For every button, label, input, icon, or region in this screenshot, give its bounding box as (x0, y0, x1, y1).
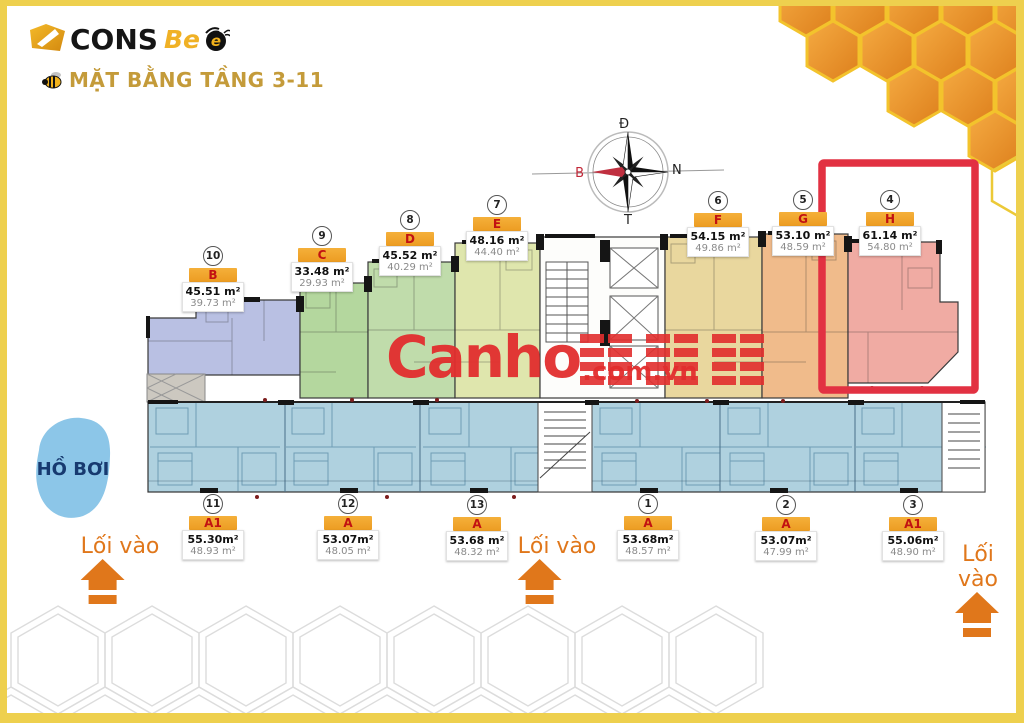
unit-number-badge: 4 (880, 190, 900, 210)
unit-area-gross: 53.10 m² (774, 229, 832, 242)
unit-area-net: 40.29 m² (381, 262, 439, 273)
stairwell (538, 402, 592, 492)
unit-number-badge: 7 (487, 195, 507, 215)
unit-label-7E: 7 E 48.16 m² 44.40 m² (466, 195, 528, 261)
unit-area-net: 39.73 m² (184, 298, 242, 309)
entrance-left: Lối vào (81, 534, 160, 605)
unit-label-8D: 8 D 45.52 m² 40.29 m² (379, 210, 441, 276)
unit-number-badge: 5 (793, 190, 813, 210)
unit-area-box: 61.14 m² 54.80 m² (859, 226, 921, 256)
entrance-arrow-icon (518, 559, 562, 605)
brand-logo: CONS Be e (28, 22, 230, 56)
brand-mark-icon (28, 22, 68, 56)
unit-area-box: 54.15 m² 49.86 m² (687, 227, 749, 257)
entrance-label: Lối vào (955, 542, 1001, 592)
hatched-service-box (147, 374, 205, 402)
unit-area-box: 45.51 m² 39.73 m² (182, 282, 244, 312)
bee-icon (42, 70, 64, 90)
unit-label-4H: 4 H 61.14 m² 54.80 m² (859, 190, 921, 256)
unit-letter-bar: B (189, 268, 237, 282)
compass-label-right: N (672, 163, 682, 178)
frame-border-right (1016, 0, 1024, 723)
entrance-label: Lối vào (518, 534, 597, 559)
unit-label-9C: 9 C 33.48 m² 29.93 m² (291, 226, 353, 292)
unit-area-box: 55.30m² 48.93 m² (182, 530, 244, 560)
unit-letter-bar: D (386, 232, 434, 246)
frame-border-top (0, 0, 1024, 6)
unit-area-net: 48.90 m² (884, 547, 942, 558)
compass-west-needle (592, 167, 626, 177)
unit-number-badge: 10 (203, 246, 223, 266)
watermark-name: Canho (386, 330, 580, 385)
unit-letter-bar: H (866, 212, 914, 226)
unit-area-gross: 55.30m² (184, 533, 242, 546)
unit-label-11A1: 11 A1 55.30m² 48.93 m² (182, 494, 244, 560)
unit-label-3A1: 3 A1 55.06m² 48.90 m² (882, 495, 944, 561)
unit-label-5G: 5 G 53.10 m² 48.59 m² (772, 190, 834, 256)
unit-4-H-footprint (848, 242, 958, 383)
unit-area-box: 53.07m² 47.99 m² (755, 531, 817, 561)
unit-letter-bar: E (473, 217, 521, 231)
unit-number-badge: 1 (638, 494, 658, 514)
flyer-canvas: Đ T N B HỒ BƠI Canho .com.vn (0, 0, 1024, 723)
logo-cons-text: CONS (70, 23, 158, 56)
unit-number-badge: 13 (467, 495, 487, 515)
unit-area-net: 48.93 m² (184, 546, 242, 557)
unit-area-net: 49.86 m² (689, 243, 747, 254)
honeycomb-bottom-left-decor (0, 606, 763, 723)
compass-label-bottom: T (623, 213, 632, 228)
unit-number-badge: 9 (312, 226, 332, 246)
entrance-label: Lối vào (81, 534, 160, 559)
unit-area-net: 44.40 m² (468, 247, 526, 258)
unit-area-net: 48.57 m² (619, 546, 677, 557)
entrance-center: Lối vào (518, 534, 597, 605)
unit-area-box: 55.06m² 48.90 m² (882, 531, 944, 561)
frame-border-left (0, 0, 7, 723)
pool-label: HỒ BƠI (37, 456, 110, 480)
unit-letter-bar: A1 (889, 517, 937, 531)
unit-letter-bar: A (624, 516, 672, 530)
logo-e-text: e (211, 32, 221, 50)
unit-area-gross: 53.68 m² (448, 534, 506, 547)
unit-area-gross: 45.51 m² (184, 285, 242, 298)
unit-area-box: 48.16 m² 44.40 m² (466, 231, 528, 261)
unit-letter-bar: A (324, 516, 372, 530)
unit-letter-bar: A (453, 517, 501, 531)
page-title: MẶT BẰNG TẦNG 3-11 (69, 68, 324, 92)
unit-letter-bar: A (762, 517, 810, 531)
entrance-right: Lối vào (955, 542, 1001, 638)
unit-label-10B: 10 B 45.51 m² 39.73 m² (182, 246, 244, 312)
entrance-arrow-icon (81, 559, 125, 605)
unit-number-badge: 8 (400, 210, 420, 230)
bottom-wing (148, 402, 986, 492)
unit-label-6F: 6 F 54.15 m² 49.86 m² (687, 191, 749, 257)
unit-label-2A: 2 A 53.07m² 47.99 m² (755, 495, 817, 561)
honeycomb-top-right-decor (780, 0, 1024, 216)
unit-area-gross: 53.07m² (757, 534, 815, 547)
unit-letter-bar: F (694, 213, 742, 227)
logo-be-text: Be (164, 25, 200, 54)
unit-area-gross: 33.48 m² (293, 265, 351, 278)
unit-area-net: 29.93 m² (293, 278, 351, 289)
unit-area-box: 53.07m² 48.05 m² (317, 530, 379, 560)
unit-area-box: 53.68m² 48.57 m² (617, 530, 679, 560)
entrance-arrow-icon (955, 592, 999, 638)
unit-letter-bar: G (779, 212, 827, 226)
unit-label-1A: 1 A 53.68m² 48.57 m² (617, 494, 679, 560)
bee-e-icon: e (202, 25, 230, 53)
compass-label-left: B (575, 166, 584, 181)
unit-area-gross: 61.14 m² (861, 229, 919, 242)
unit-area-gross: 55.06m² (884, 534, 942, 547)
unit-letter-bar: C (298, 248, 346, 262)
unit-number-badge: 12 (338, 494, 358, 514)
compass-label-top: Đ (619, 117, 629, 132)
unit-5-G-footprint (762, 234, 848, 398)
unit-area-gross: 48.16 m² (468, 234, 526, 247)
unit-area-gross: 53.07m² (319, 533, 377, 546)
unit-area-net: 54.80 m² (861, 242, 919, 253)
unit-area-gross: 45.52 m² (381, 249, 439, 262)
unit-area-net: 48.59 m² (774, 242, 832, 253)
unit-area-net: 48.05 m² (319, 546, 377, 557)
unit-area-gross: 53.68m² (619, 533, 677, 546)
unit-number-badge: 6 (708, 191, 728, 211)
unit-area-net: 47.99 m² (757, 547, 815, 558)
unit-area-box: 45.52 m² 40.29 m² (379, 246, 441, 276)
unit-number-badge: 11 (203, 494, 223, 514)
unit-number-badge: 2 (776, 495, 796, 515)
unit-area-box: 53.10 m² 48.59 m² (772, 226, 834, 256)
unit-area-box: 53.68 m² 48.32 m² (446, 531, 508, 561)
unit-label-13A: 13 A 53.68 m² 48.32 m² (446, 495, 508, 561)
watermark-seal-icon (576, 330, 772, 392)
unit-area-net: 48.32 m² (448, 547, 506, 558)
unit-number-badge: 3 (903, 495, 923, 515)
frame-border-bottom (0, 713, 1024, 723)
unit-9-C-footprint (300, 283, 368, 398)
page-title-row: MẶT BẰNG TẦNG 3-11 (42, 68, 324, 92)
unit-letter-bar: A1 (189, 516, 237, 530)
unit-area-box: 33.48 m² 29.93 m² (291, 262, 353, 292)
unit-label-12A: 12 A 53.07m² 48.05 m² (317, 494, 379, 560)
unit-area-gross: 54.15 m² (689, 230, 747, 243)
stairwell (942, 402, 985, 492)
pool-blob: HỒ BƠI (25, 410, 120, 528)
